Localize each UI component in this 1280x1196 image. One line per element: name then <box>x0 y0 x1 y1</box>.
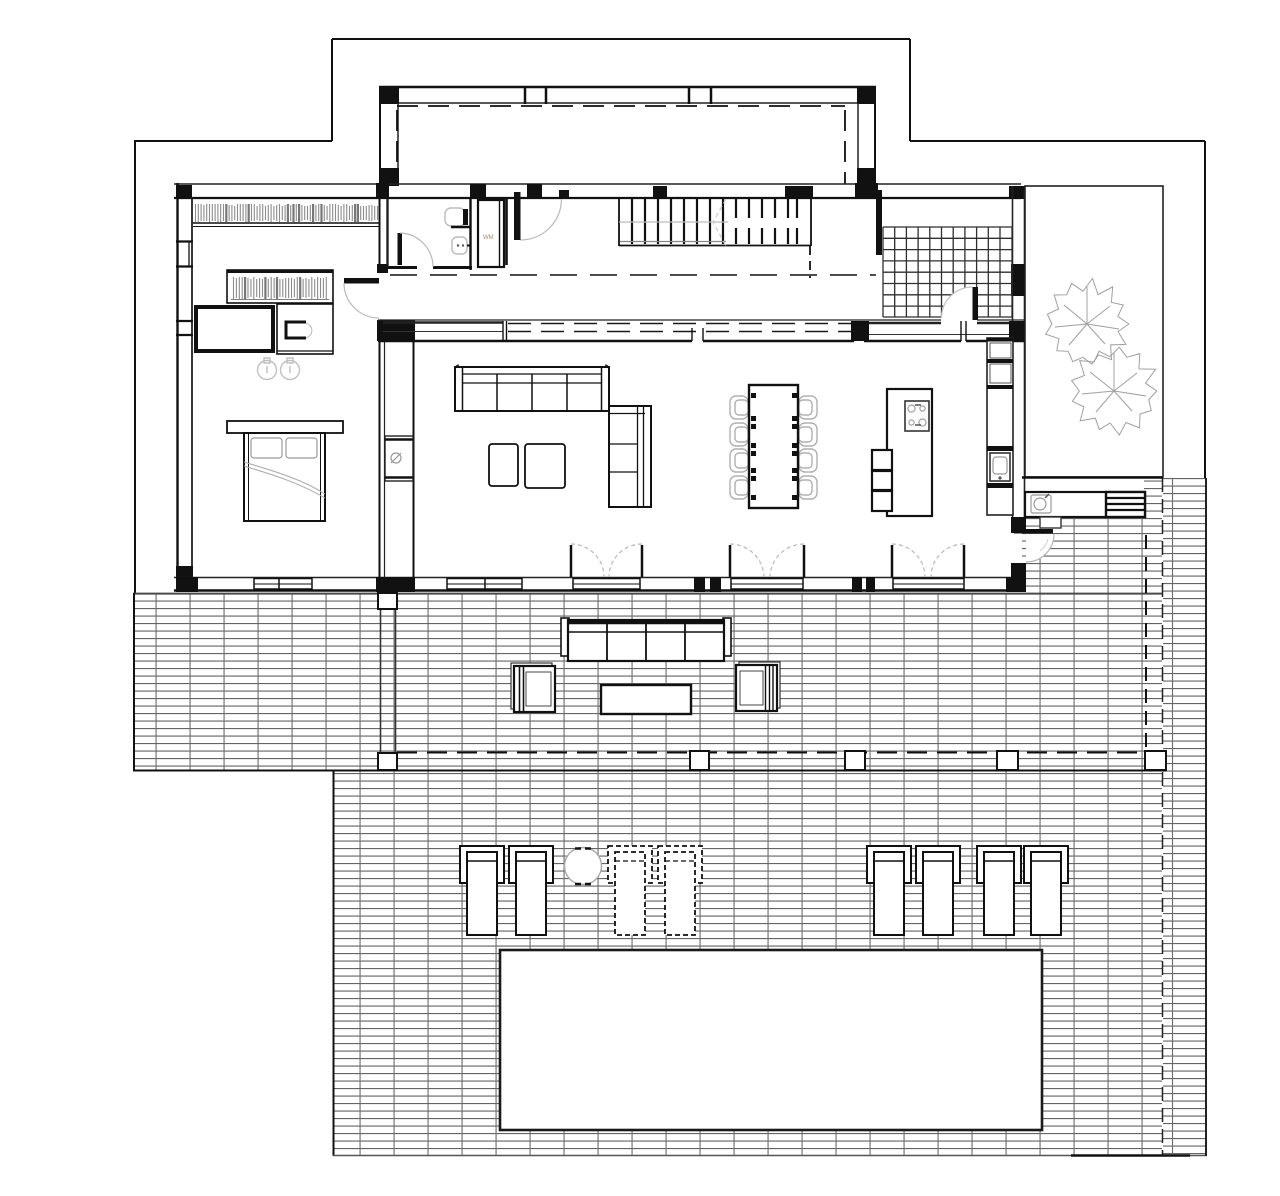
svg-text:WM: WM <box>483 235 494 241</box>
